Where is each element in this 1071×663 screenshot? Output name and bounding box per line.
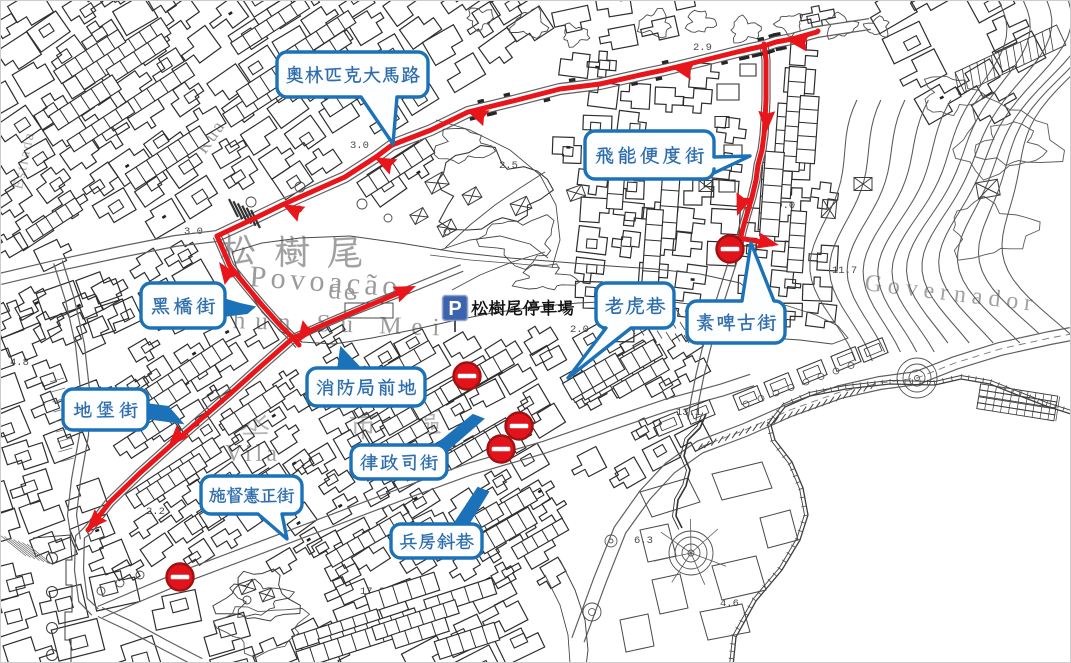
svg-text:P: P: [448, 298, 461, 320]
svg-text:2.5: 2.5: [499, 160, 518, 172]
svg-text:2.9: 2.9: [693, 42, 712, 54]
svg-text:3.0: 3.0: [350, 140, 369, 152]
svg-text:de: de: [328, 277, 359, 306]
